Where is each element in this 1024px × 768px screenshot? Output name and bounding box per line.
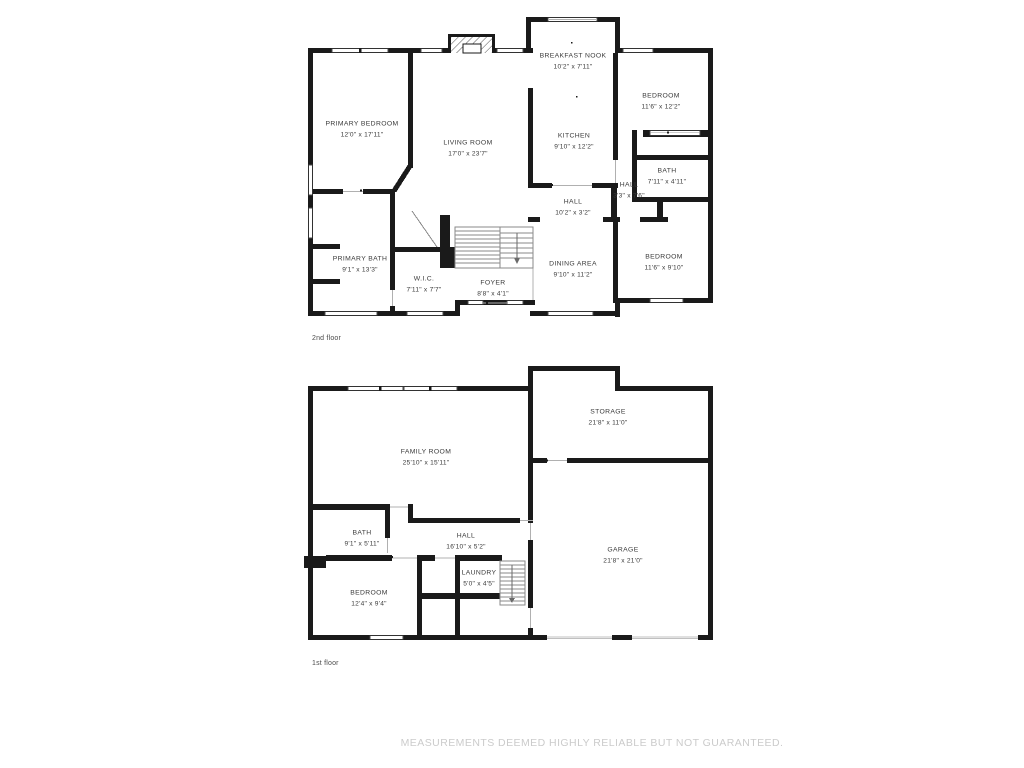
floorplan-page: PRIMARY BEDROOM 12'0" x 17'11" LIVING RO… — [0, 0, 1024, 768]
floor-caption-1st: 1st floor — [312, 660, 339, 667]
room-name: W.I.C. — [406, 275, 441, 286]
room-name: KITCHEN — [554, 132, 593, 143]
room-label-wic: W.I.C. 7'11" x 7'7" — [406, 275, 441, 296]
floorplans-svg — [0, 0, 1024, 768]
room-dims: 5'0" x 4'5" — [462, 579, 497, 590]
room-name: BEDROOM — [642, 92, 681, 103]
room-name: STORAGE — [589, 408, 628, 419]
room-dims: 7'11" x 7'7" — [406, 285, 441, 296]
room-label-hall-small-2f: HALL 3'3" x 7'6" — [613, 181, 645, 202]
room-label-foyer: FOYER 8'8" x 4'1" — [477, 279, 509, 300]
room-name: FOYER — [477, 279, 509, 290]
room-dims: 11'6" x 12'2" — [642, 102, 681, 113]
room-name: BREAKFAST NOOK — [540, 52, 607, 63]
room-dims: 3'3" x 7'6" — [613, 191, 645, 202]
room-label-breakfast-nook: BREAKFAST NOOK 10'2" x 7'11" — [540, 52, 607, 73]
angled-partition-line — [412, 211, 437, 247]
room-name: BATH — [648, 167, 686, 178]
room-dims: 16'10" x 5'2" — [446, 542, 485, 553]
fireplace — [448, 34, 495, 53]
room-label-primary-bedroom: PRIMARY BEDROOM 12'0" x 17'11" — [326, 120, 399, 141]
room-dims: 9'10" x 11'2" — [549, 270, 597, 281]
window-divider — [359, 48, 362, 52]
room-name: HALL — [613, 181, 645, 192]
room-name: HALL — [555, 198, 591, 209]
room-name: DINING AREA — [549, 260, 597, 271]
room-dims: 9'1" x 5'11" — [344, 539, 379, 550]
floor-caption-2nd: 2nd floor — [312, 335, 341, 342]
angled-wall — [394, 166, 410, 191]
room-name: FAMILY ROOM — [401, 448, 451, 459]
staircase-2f — [455, 227, 533, 268]
room-dims: 17'0" x 23'7" — [443, 149, 492, 160]
room-name: GARAGE — [603, 546, 642, 557]
room-name: BEDROOM — [645, 253, 684, 264]
room-label-bath-1f: BATH 9'1" x 5'11" — [344, 529, 379, 550]
room-name: PRIMARY BEDROOM — [326, 120, 399, 131]
closet-slider — [650, 131, 700, 136]
room-dims: 9'1" x 13'3" — [333, 265, 387, 276]
room-dims: 21'8" x 11'0" — [589, 418, 628, 429]
room-label-hall-2f: HALL 10'2" x 3'2" — [555, 198, 591, 219]
room-dims: 8'8" x 4'1" — [477, 289, 509, 300]
room-dims: 10'2" x 7'11" — [540, 62, 607, 73]
room-dims: 11'6" x 9'10" — [645, 263, 684, 274]
room-dims: 10'2" x 3'2" — [555, 208, 591, 219]
room-dims: 21'8" x 21'0" — [603, 556, 642, 567]
room-label-primary-bath: PRIMARY BATH 9'1" x 13'3" — [333, 255, 387, 276]
room-name: BEDROOM — [350, 589, 388, 600]
room-dims: 12'0" x 17'11" — [326, 130, 399, 141]
room-label-hall-1f: HALL 16'10" x 5'2" — [446, 532, 485, 553]
measurements-disclaimer: MEASUREMENTS DEEMED HIGHLY RELIABLE BUT … — [401, 737, 784, 749]
room-dims: 25'10" x 15'11" — [401, 458, 451, 469]
room-label-storage: STORAGE 21'8" x 11'0" — [589, 408, 628, 429]
room-label-family-room: FAMILY ROOM 25'10" x 15'11" — [401, 448, 451, 469]
room-name: PRIMARY BATH — [333, 255, 387, 266]
room-label-bedroom-upper-right: BEDROOM 11'6" x 12'2" — [642, 92, 681, 113]
room-label-living-room: LIVING ROOM 17'0" x 23'7" — [443, 139, 492, 160]
room-label-bedroom-lower-right: BEDROOM 11'6" x 9'10" — [645, 253, 684, 274]
room-name: LAUNDRY — [462, 569, 497, 580]
room-dims: 7'11" x 4'11" — [648, 177, 686, 188]
room-label-kitchen: KITCHEN 9'10" x 12'2" — [554, 132, 593, 153]
room-label-garage: GARAGE 21'8" x 21'0" — [603, 546, 642, 567]
room-dims: 12'4" x 9'4" — [350, 599, 388, 610]
room-name: BATH — [344, 529, 379, 540]
room-name: HALL — [446, 532, 485, 543]
room-dims: 9'10" x 12'2" — [554, 142, 593, 153]
room-label-laundry: LAUNDRY 5'0" x 4'5" — [462, 569, 497, 590]
room-name: LIVING ROOM — [443, 139, 492, 150]
room-label-bath-2f: BATH 7'11" x 4'11" — [648, 167, 686, 188]
room-label-dining-area: DINING AREA 9'10" x 11'2" — [549, 260, 597, 281]
room-label-bedroom-1f: BEDROOM 12'4" x 9'4" — [350, 589, 388, 610]
